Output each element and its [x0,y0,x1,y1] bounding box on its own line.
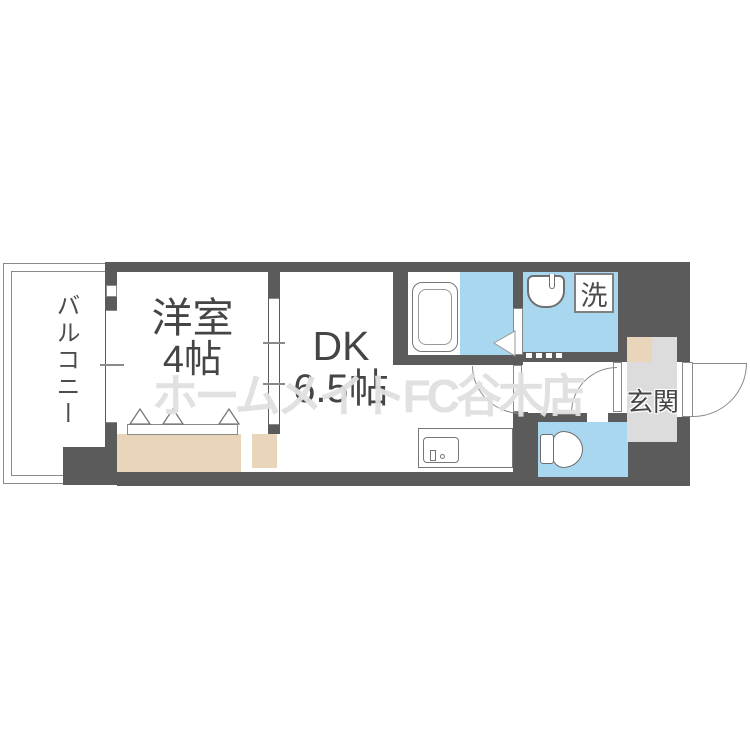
toilet-tank-icon [540,434,554,464]
closet-door-rail [127,424,238,435]
closet-floor [117,434,241,472]
wall-below-dk-door [513,412,528,472]
bathroom-door-triangle [492,330,516,357]
balcony-label: バルコニー [48,293,83,468]
western-room-label: 洋室 4帖 [117,296,268,381]
washbasin-icon [527,275,565,308]
wall-toilet-top [528,413,628,422]
dk-size: 6.5帖 [266,368,416,411]
left-wall-small-window [106,285,117,297]
washroom-threshold-dashes [526,353,564,358]
balcony-window [106,310,117,423]
hall-door-swing-arc [571,367,617,413]
kitchen-faucet-knob [440,454,445,459]
closet-fold-door-marks [117,407,247,425]
bathtub-inner-line [418,289,452,345]
entrance-door-leaf [682,362,693,417]
toilet-door-opening [587,413,608,422]
entrance-label: 玄関 [625,388,681,416]
kitchen-sink-icon [423,437,459,463]
closet-small-floor [252,434,277,468]
wall-toilet-left [528,413,538,473]
dk-name: DK [266,324,416,368]
wall-above-bath-door [513,262,523,308]
entrance-door-swing-arc [693,363,747,417]
entrance-floor-upper [652,337,677,362]
wall-right-lower [677,417,690,486]
dk-door-swing-arc [472,366,522,414]
laundry-box: 洗 [574,273,614,313]
dk-label: DK 6.5帖 [266,324,416,411]
floor-plan: 洗 バルコニー 洋室 4帖 DK 6.5帖 玄関 ホームメイトFC谷木店 [0,0,750,750]
laundry-label: 洗 [581,274,608,313]
shoe-cabinet [627,337,652,362]
western-room-size: 4帖 [117,340,268,381]
kitchen-faucet [430,450,436,461]
western-room-name: 洋室 [117,296,268,340]
washbasin-faucet [549,274,555,289]
